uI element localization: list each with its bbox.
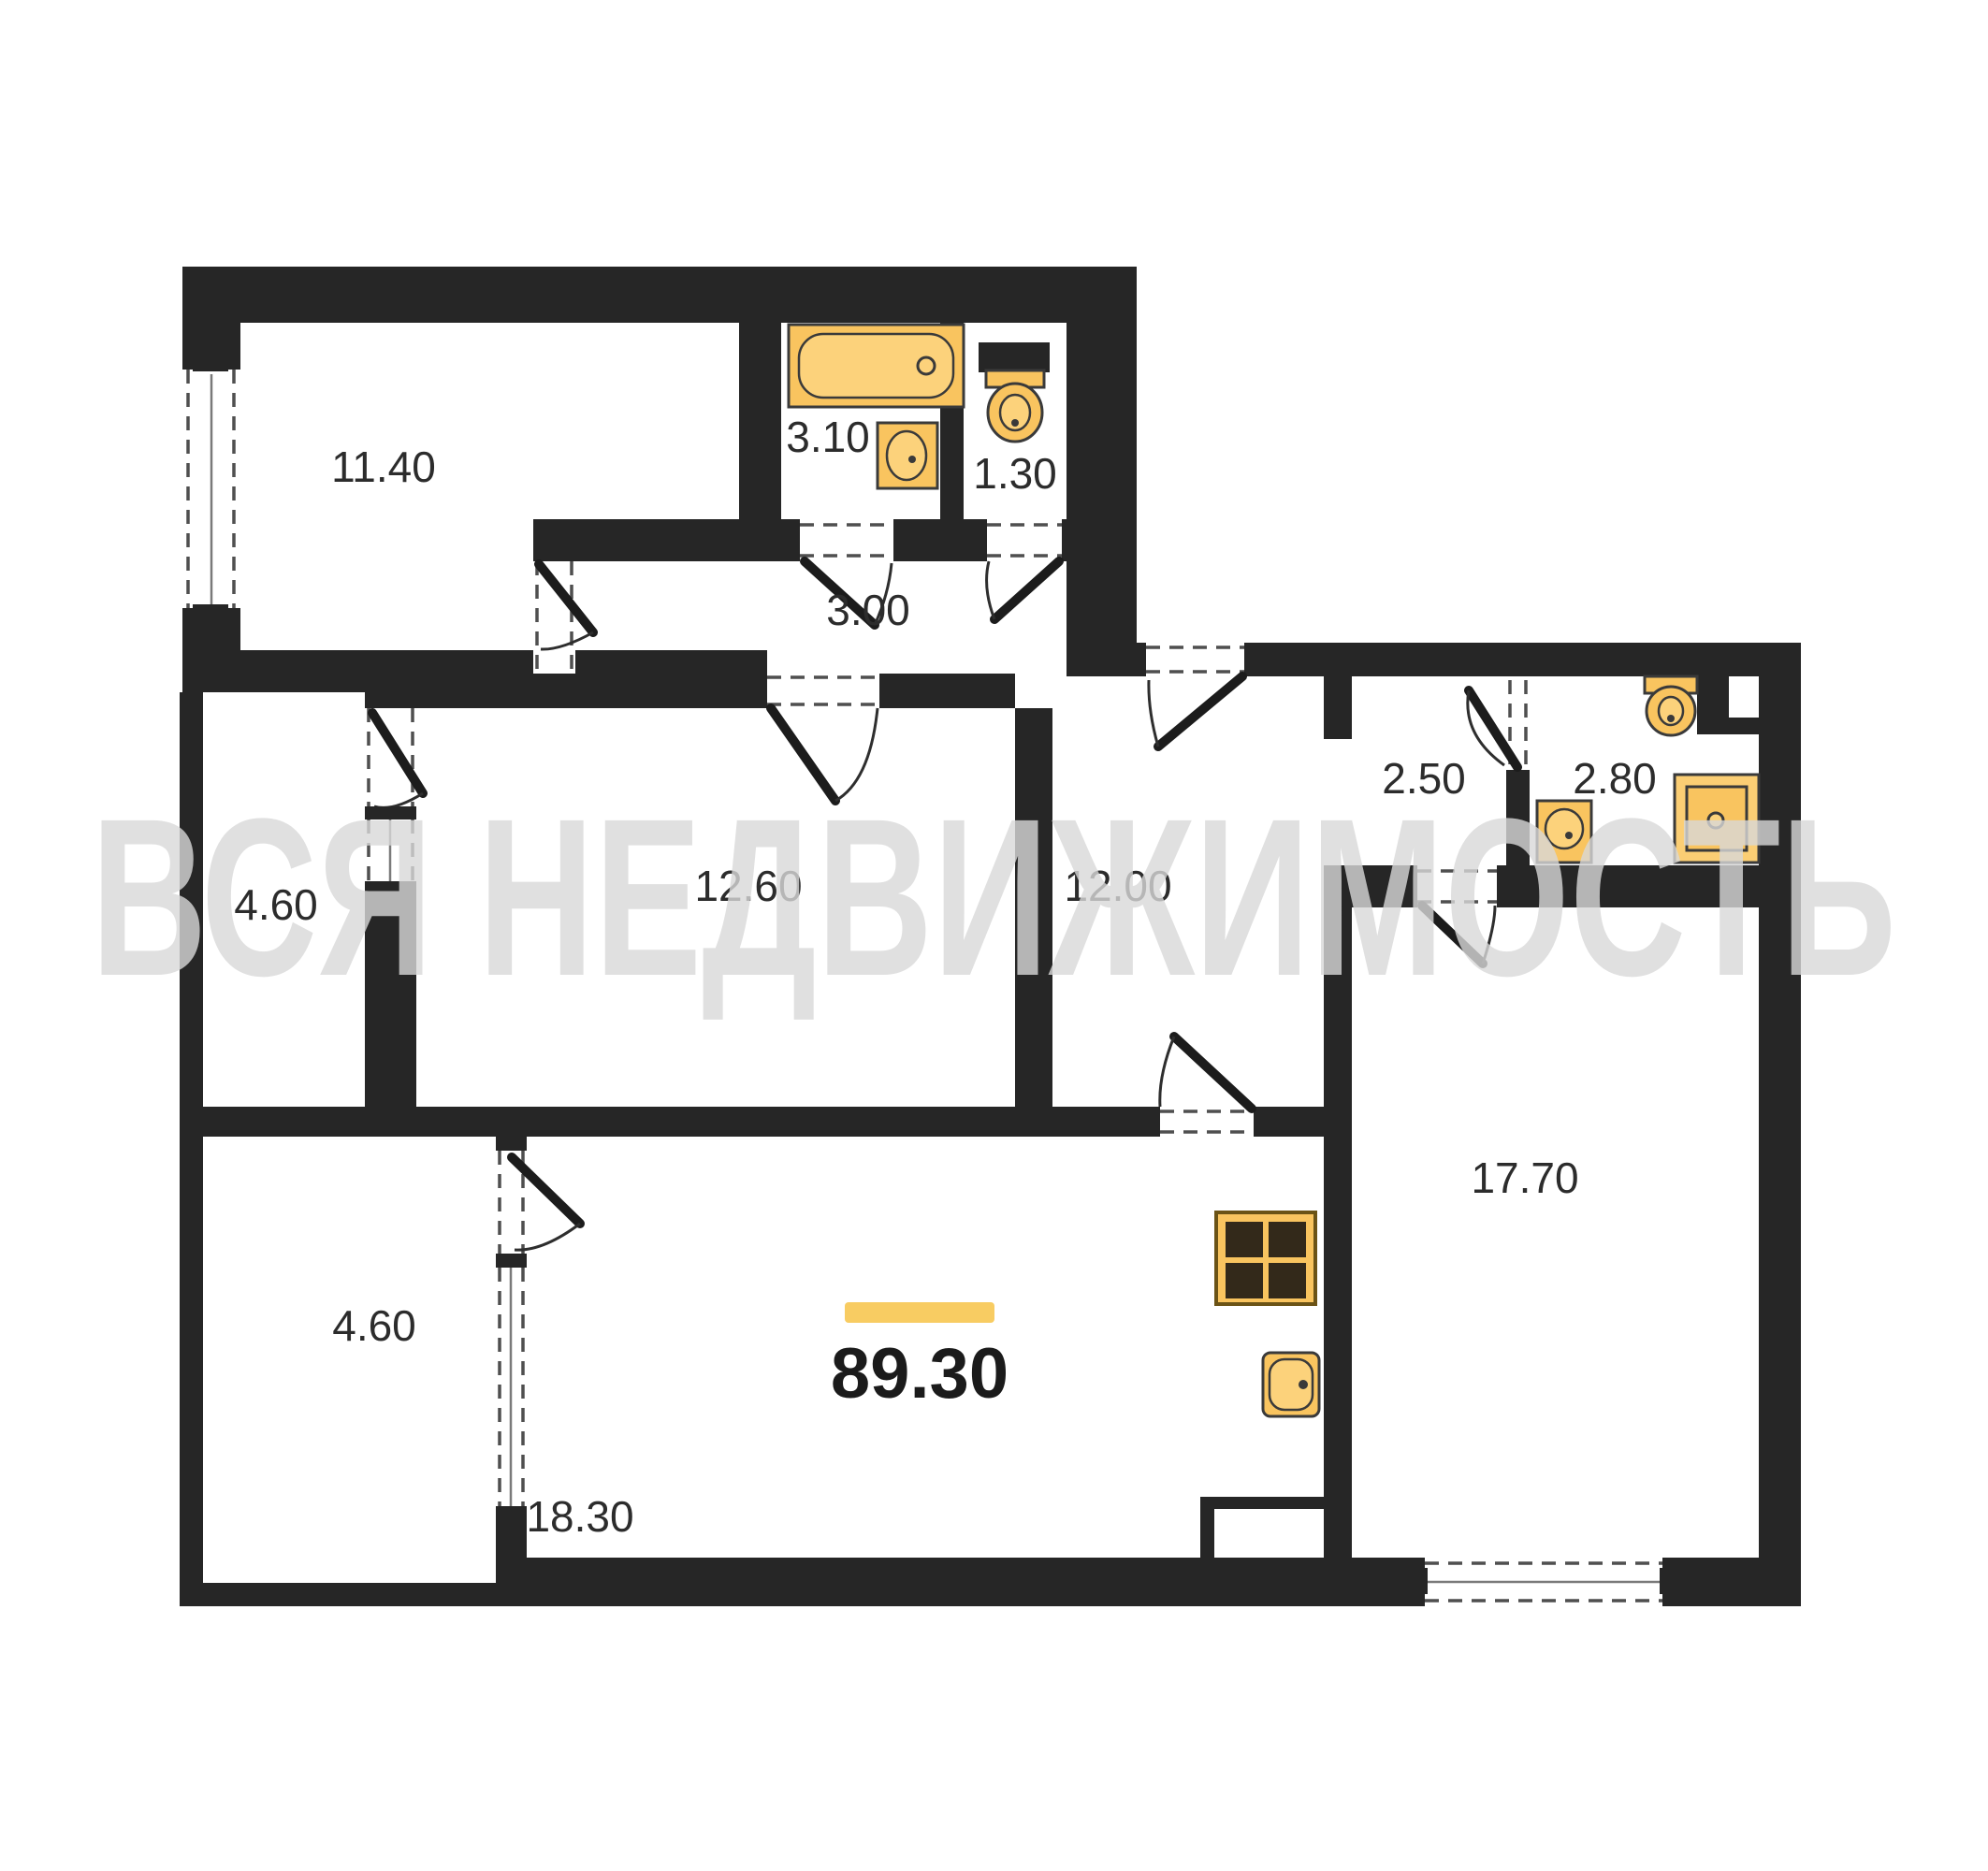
wc-toilet-icon [979, 342, 1050, 442]
door-shower-room [1468, 680, 1530, 770]
room-label-bathroom: 3.10 [786, 413, 870, 461]
floorplan-drawing: 11.40 3.10 1.30 3.00 4.60 12.60 12.00 2.… [0, 0, 1988, 1871]
total-area-value: 89.30 [831, 1334, 1009, 1414]
room-label-bedroom: 11.40 [331, 442, 436, 491]
entrance-door [1146, 643, 1244, 747]
room-label-loggia-lower: 4.60 [332, 1301, 416, 1350]
bathtub-icon [789, 325, 964, 407]
room-label-wc: 1.30 [973, 449, 1057, 498]
door-kitchen [1160, 1037, 1254, 1137]
room-label-living-room: 17.70 [1471, 1153, 1578, 1202]
window-bedroom [182, 356, 240, 619]
door-wc [987, 519, 1062, 619]
kitchen-sink-icon [1263, 1353, 1319, 1416]
stove-icon [1216, 1212, 1315, 1304]
floorplan: 11.40 3.10 1.30 3.00 4.60 12.60 12.00 2.… [0, 0, 1988, 1871]
watermark-text: ВСЯ НЕДВИЖИМОСТЬ [91, 772, 1896, 1023]
bathroom-sink-icon [878, 423, 937, 488]
shower-room-toilet-icon [1645, 676, 1759, 735]
window-living-room [1411, 1558, 1676, 1606]
room-label-inner-hall: 3.00 [826, 586, 910, 634]
total-area-block: 89.30 [831, 1302, 1009, 1414]
total-area-marker [845, 1302, 994, 1323]
balcony-door-window-lower [500, 1151, 580, 1506]
room-label-kitchen: 18.30 [526, 1492, 633, 1541]
